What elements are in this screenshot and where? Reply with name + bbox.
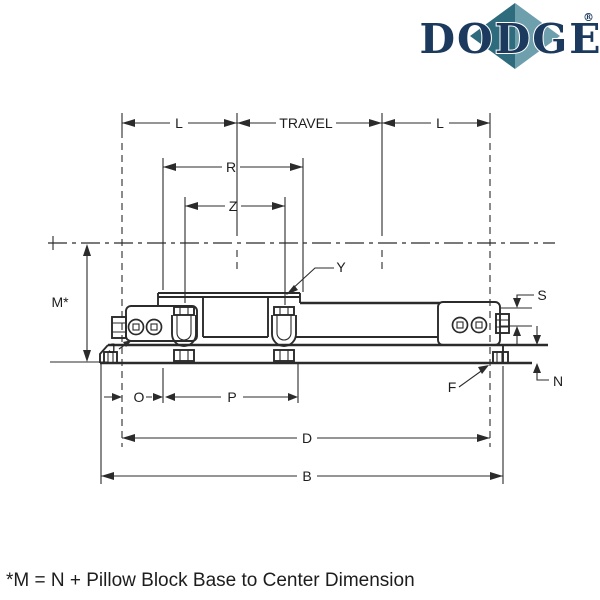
- dim-label-l-left: L: [175, 115, 183, 131]
- u-bolt-clamp-1: [172, 307, 196, 361]
- dim-label-d: D: [302, 430, 312, 446]
- logo-registered-mark: ®: [583, 11, 594, 24]
- dim-label-travel: TRAVEL: [279, 115, 333, 131]
- dim-label-z: Z: [229, 198, 238, 214]
- u-bolt-clamp-2: [272, 307, 296, 361]
- dim-label-y: Y: [336, 259, 346, 275]
- dim-label-j: J: [109, 340, 116, 356]
- dim-label-b: B: [302, 468, 311, 484]
- dimension-z: Z: [185, 198, 285, 214]
- dimension-b: B: [101, 468, 503, 484]
- dimension-r: R: [163, 159, 303, 175]
- base-plate: [100, 345, 548, 363]
- dimensions-o-p: O P: [104, 389, 298, 405]
- leader-j: J: [109, 340, 133, 356]
- leader-y: Y: [286, 259, 346, 295]
- dimension-s: S: [513, 287, 547, 344]
- pillow-block-right: [438, 302, 509, 363]
- footnote: *M = N + Pillow Block Base to Center Dim…: [6, 570, 415, 591]
- dim-label-p: P: [227, 389, 236, 405]
- technical-drawing: DODGE ® L TRAVEL L: [0, 0, 600, 600]
- dodge-logo: DODGE ®: [419, 3, 600, 69]
- dimension-d: D: [122, 430, 490, 446]
- dim-label-o: O: [134, 389, 145, 405]
- dim-label-f: F: [448, 379, 457, 395]
- dim-label-m: M*: [51, 294, 69, 310]
- dim-label-r: R: [226, 159, 236, 175]
- dimension-n: N: [533, 326, 563, 389]
- dimension-m: M*: [51, 244, 91, 362]
- guide-rail: [158, 293, 440, 337]
- leader-f: F: [448, 365, 489, 395]
- top-dimensions: L TRAVEL L: [122, 115, 490, 131]
- dim-label-s: S: [537, 287, 546, 303]
- logo-text: DODGE: [419, 15, 600, 63]
- centerline: [48, 236, 555, 250]
- dim-label-l-right: L: [436, 115, 444, 131]
- dim-label-n: N: [553, 373, 563, 389]
